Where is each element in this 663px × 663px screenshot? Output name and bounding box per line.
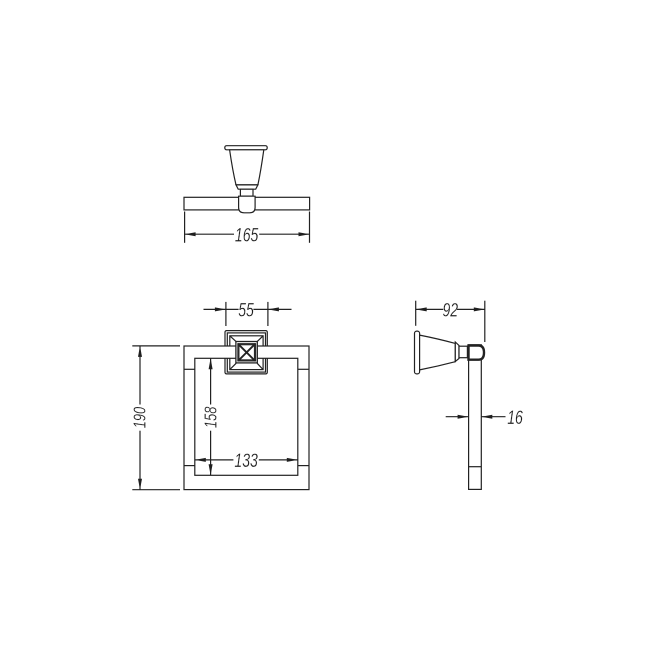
svg-text:55: 55 [238,299,254,321]
svg-text:158: 158 [202,406,222,428]
svg-text:92: 92 [442,299,458,321]
svg-text:190: 190 [131,407,151,429]
svg-text:133: 133 [234,450,258,472]
svg-text:16: 16 [507,407,523,429]
svg-text:165: 165 [235,224,259,246]
